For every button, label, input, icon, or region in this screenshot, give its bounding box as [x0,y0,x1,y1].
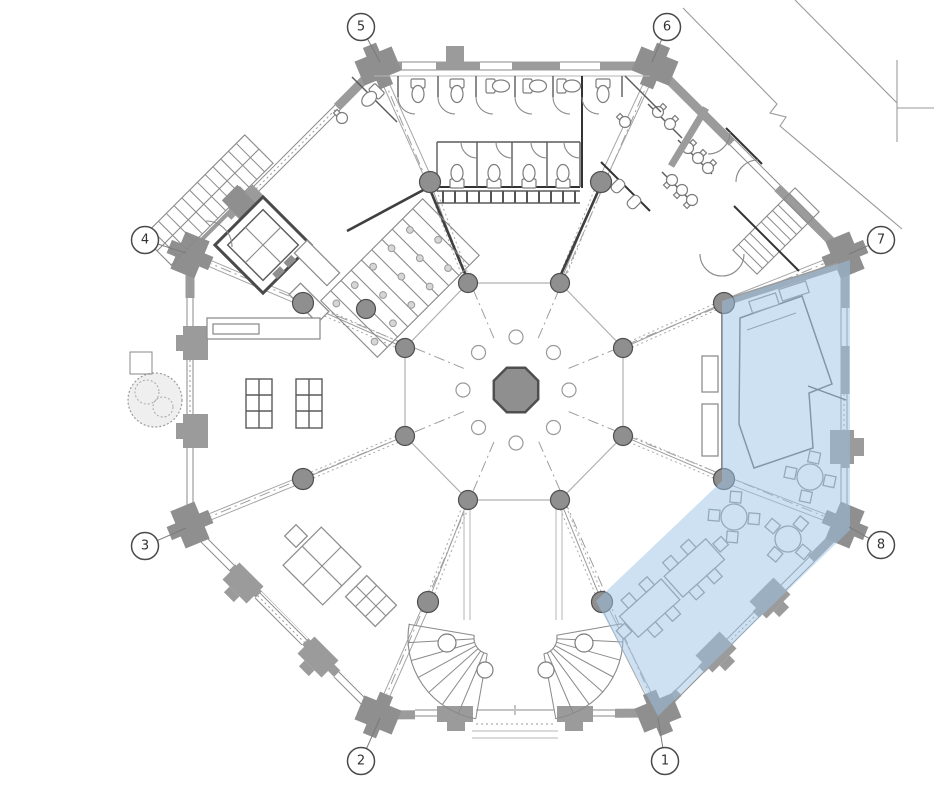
toilet-cubicles-second-row [437,142,580,188]
display-table [246,379,272,428]
small-column [472,346,486,360]
small-column [562,383,576,397]
highlight-region [596,260,850,716]
site-boundary-lines [683,0,934,229]
column [591,172,612,193]
column [614,427,633,446]
column [357,300,376,319]
grid-marker-number: 4 [141,233,149,248]
grid-marker-number: 1 [661,754,669,769]
stair-feeder-lines [464,505,562,620]
column [459,274,478,293]
atrium-balustrade [347,187,600,281]
lift-and-lobby [206,185,340,323]
small-column [546,346,560,360]
column [551,274,570,293]
small-column [456,383,470,397]
grid-marker-number: 2 [357,754,365,769]
column [293,293,314,314]
highlighted-zone [596,260,850,716]
column [418,592,439,613]
grid-marker-number: 7 [877,233,885,248]
column [551,491,570,510]
west-side-furniture [128,318,322,428]
central-column [494,368,538,412]
grid-marker-number: 5 [357,20,365,35]
column [293,469,314,490]
column [420,172,441,193]
small-column [546,420,560,434]
column [614,339,633,358]
floor-plan-canvas: 12345678 [0,0,934,785]
small-column [509,330,523,344]
grid-marker-number: 8 [877,538,885,553]
small-column [472,420,486,434]
grid-marker-number: 3 [141,539,149,554]
small-column [509,436,523,450]
feature-stair [321,199,479,357]
column [396,339,415,358]
grid-marker-number: 6 [663,20,671,35]
washroom-basins [601,76,719,211]
column [459,491,478,510]
octagonal-floor-plan: 12345678 [0,0,934,785]
display-table [296,379,322,428]
southwest-furniture [283,525,396,627]
column [396,427,415,446]
tree [128,352,182,427]
